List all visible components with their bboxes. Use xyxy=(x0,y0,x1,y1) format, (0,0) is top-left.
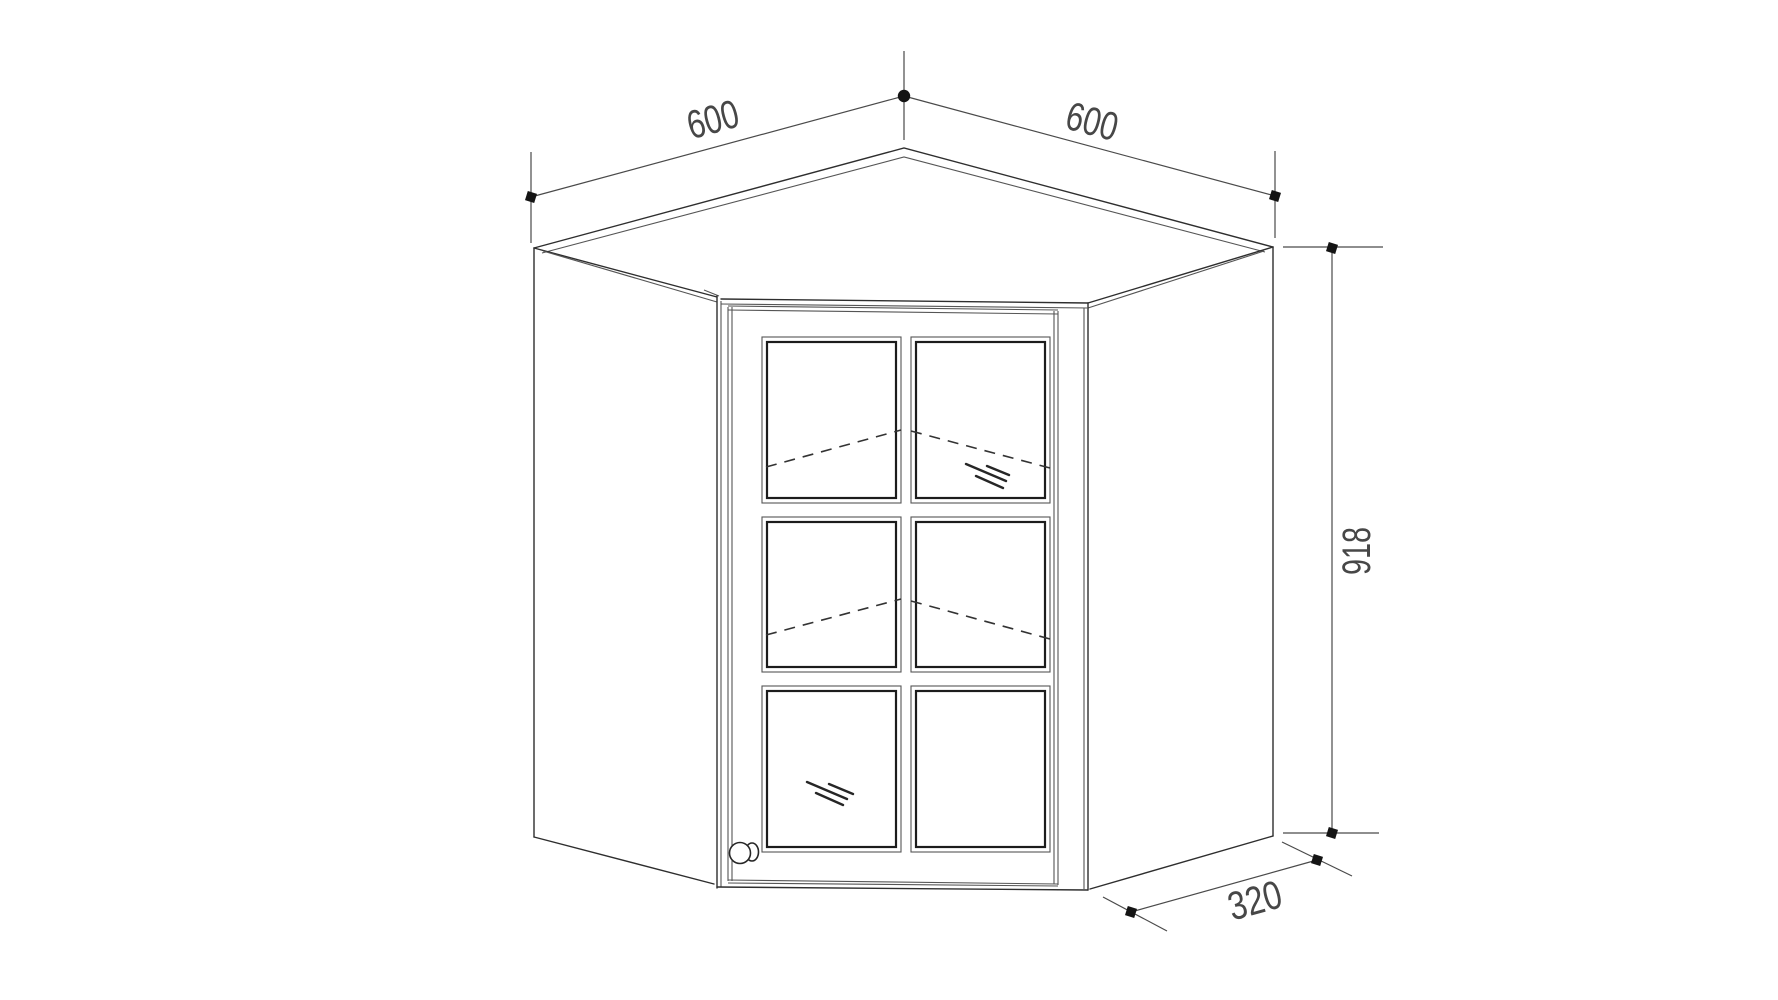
left-panel-top-front-edge-inner xyxy=(543,251,717,302)
shelf-hidden-line-lower xyxy=(766,599,1050,639)
dimension-end-marker xyxy=(1125,906,1137,918)
dimension-top-left-600: 600 xyxy=(525,92,904,243)
dimension-height-918: 918 xyxy=(1283,242,1383,839)
dimension-end-marker xyxy=(1326,242,1338,254)
glass-pane-row3-col1 xyxy=(762,686,901,852)
right-side-panel xyxy=(1088,247,1273,889)
dimension-depth-320: 320 xyxy=(1103,842,1352,931)
top-back-edge-inner xyxy=(542,157,1265,253)
glass-pane-row3-col2 xyxy=(911,686,1050,852)
knob-face xyxy=(730,843,751,864)
glass-reflection-bottom-left xyxy=(807,782,853,805)
door-knob xyxy=(730,843,759,864)
dimension-end-marker xyxy=(1269,190,1281,202)
shelf-hidden-line-upper xyxy=(766,430,1050,468)
glass-pane-row1-col1 xyxy=(762,337,901,503)
dimension-apex-dot xyxy=(898,90,910,102)
pane-glass-edge xyxy=(916,522,1045,667)
pane-glass-edge xyxy=(767,691,896,847)
dim-label-600-right: 600 xyxy=(1061,94,1123,150)
left-side-panel xyxy=(534,248,719,884)
right-panel-top-front-edge-inner xyxy=(1088,251,1264,308)
dim-label-600-left: 600 xyxy=(682,92,744,148)
glass-pane-row2-col1 xyxy=(762,517,901,672)
front-face-top-edge-lower xyxy=(721,304,1088,308)
pane-frame xyxy=(911,686,1050,852)
dim-label-320: 320 xyxy=(1223,873,1287,930)
dimension-end-marker xyxy=(1311,854,1323,866)
shelf-line-left-segment xyxy=(766,430,901,467)
cabinet-carcass xyxy=(534,148,1273,890)
right-panel-top-front-edge-outer xyxy=(1088,247,1273,303)
pane-glass-edge xyxy=(916,691,1045,847)
pane-glass-edge xyxy=(767,342,896,498)
reflection-stroke xyxy=(807,782,847,799)
front-face xyxy=(717,296,1088,890)
left-panel-bottom-edge xyxy=(534,837,714,884)
dimension-end-marker xyxy=(525,191,537,203)
pane-frame xyxy=(762,517,901,672)
dimension-top-right-600: 600 xyxy=(898,51,1281,238)
glass-pane-row2-col2 xyxy=(911,517,1050,672)
shelf-line-right-segment xyxy=(911,601,1050,639)
drawing-canvas: 600 600 918 320 xyxy=(0,0,1778,1000)
pane-frame xyxy=(911,517,1050,672)
dimension-end-marker xyxy=(1326,827,1338,839)
front-face-bottom-edge xyxy=(717,887,1088,890)
shelf-line-left-segment xyxy=(766,599,901,635)
cabinet-dimension-drawing: 600 600 918 320 xyxy=(0,0,1778,1000)
left-panel-top-front-edge-outer xyxy=(534,248,717,297)
door-top-edge-lower xyxy=(728,310,1058,314)
pane-frame xyxy=(762,337,901,503)
glass-door xyxy=(728,306,1058,886)
shelf-line-right-segment xyxy=(911,431,1050,468)
glass-reflection-top-right xyxy=(966,464,1009,488)
top-back-edge-outer xyxy=(534,148,1273,248)
pane-glass-edge xyxy=(767,522,896,667)
pane-glass-edge xyxy=(916,342,1045,498)
pane-frame xyxy=(762,686,901,852)
front-face-top-edge-upper xyxy=(721,299,1088,303)
dim-label-918: 918 xyxy=(1335,527,1379,575)
